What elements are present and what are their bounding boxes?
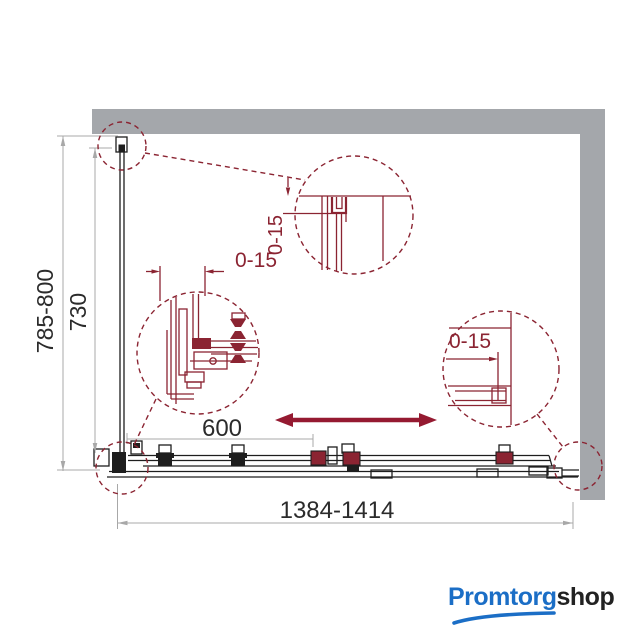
dim-width-range: 1384-1414 <box>280 497 395 524</box>
logo-brand-secondary: shop <box>557 583 615 611</box>
top-wall <box>92 109 605 134</box>
dim-glass-height: 730 <box>65 293 91 331</box>
door-carrier-cluster <box>311 444 360 472</box>
slide-direction-arrow <box>275 413 437 427</box>
leader-right <box>537 414 563 447</box>
dim-door-travel: 600 <box>202 415 242 442</box>
leader-top <box>145 153 305 180</box>
detail-top-profile: 0-15 <box>265 178 411 271</box>
shower-enclosure-drawing: 785-800 730 1384-1414 600 0-15 <box>0 0 640 640</box>
detail-left-profile: 0-15 <box>146 249 277 404</box>
roller-mid <box>229 445 247 466</box>
door-carrier-right <box>496 445 513 464</box>
detail-right-profile: 0-15 <box>446 313 511 425</box>
dim-adjust-right: 0-15 <box>449 330 491 353</box>
glass-side-panel <box>116 137 127 453</box>
technical-drawing-canvas: 785-800 730 1384-1414 600 0-15 <box>0 0 640 640</box>
logo-brand-primary: Promtorg <box>448 583 557 611</box>
roller-left <box>156 445 174 466</box>
dim-adjust-left: 0-15 <box>235 249 277 272</box>
dim-height-range: 785-800 <box>32 269 58 353</box>
logo-swoosh-icon <box>452 608 562 626</box>
dimension-lines <box>57 136 573 529</box>
detail-circle-top-profile <box>295 156 413 274</box>
promtorgshop-logo: Promtorgshop <box>448 584 623 629</box>
leader-left <box>134 399 156 445</box>
bottom-rail-assembly <box>94 441 579 478</box>
logo-text: Promtorgshop <box>448 584 623 610</box>
right-wall <box>580 109 605 500</box>
